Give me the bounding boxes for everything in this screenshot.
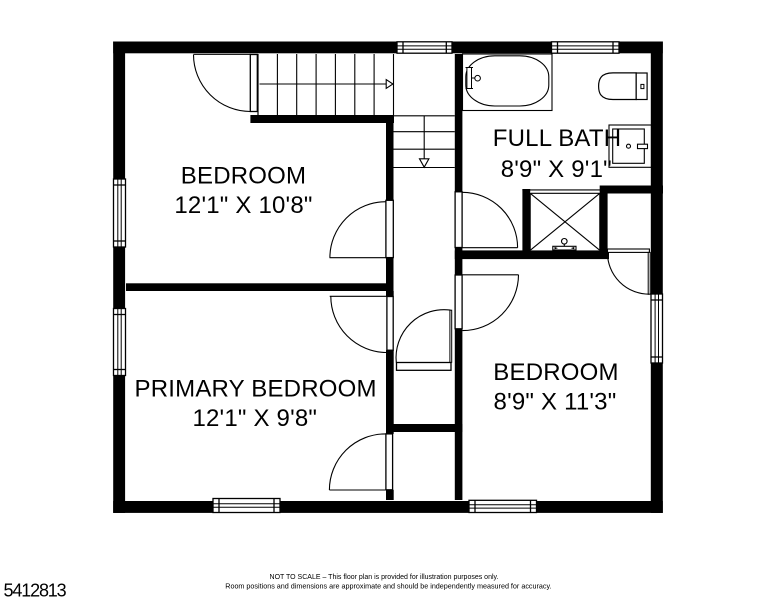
svg-text:8'9" X 11'3": 8'9" X 11'3" [494, 388, 617, 415]
svg-text:5412813: 5412813 [4, 581, 67, 600]
svg-text:12'1" X 10'8": 12'1" X 10'8" [174, 192, 312, 219]
svg-text:12'1" X 9'8": 12'1" X 9'8" [192, 405, 317, 432]
svg-text:Room positions and dimensions: Room positions and dimensions are approx… [225, 582, 551, 591]
svg-text:NOT TO SCALE – This floor plan: NOT TO SCALE – This floor plan is provid… [270, 574, 499, 581]
svg-text:PRIMARY BEDROOM: PRIMARY BEDROOM [135, 376, 377, 403]
svg-text:BEDROOM: BEDROOM [493, 359, 618, 386]
svg-text:8'9" X 9'1": 8'9" X 9'1" [501, 156, 612, 183]
svg-text:BEDROOM: BEDROOM [181, 163, 306, 190]
svg-text:FULL BATH: FULL BATH [493, 125, 622, 152]
